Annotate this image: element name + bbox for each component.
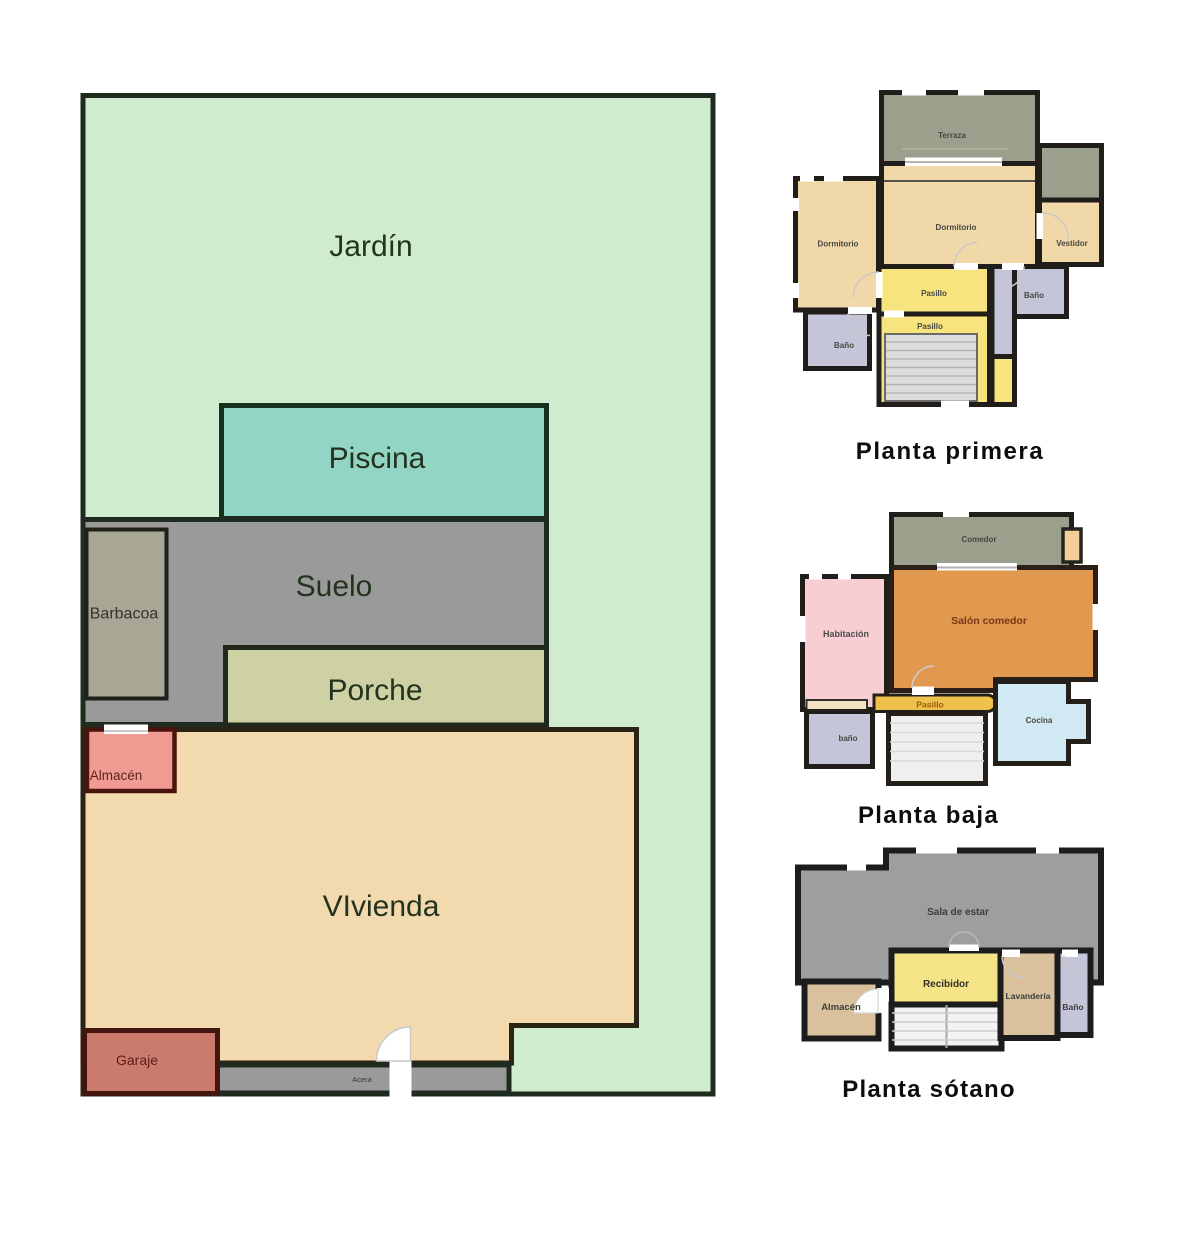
svg-text:Baño: Baño bbox=[1024, 291, 1044, 300]
svg-text:Piscina: Piscina bbox=[329, 442, 426, 475]
svg-text:Dormitorio: Dormitorio bbox=[936, 223, 977, 232]
svg-text:Dormitorio: Dormitorio bbox=[818, 240, 859, 249]
svg-text:Recibidor: Recibidor bbox=[923, 979, 969, 990]
svg-text:Terraza: Terraza bbox=[938, 131, 966, 140]
svg-text:Pasillo: Pasillo bbox=[917, 322, 943, 331]
svg-text:Pasillo: Pasillo bbox=[916, 700, 943, 710]
svg-text:Baño: Baño bbox=[1062, 1002, 1083, 1012]
svg-text:Cocina: Cocina bbox=[1026, 716, 1053, 725]
svg-text:Comedor: Comedor bbox=[961, 535, 996, 544]
svg-text:baño: baño bbox=[838, 734, 857, 743]
svg-text:Salón comedor: Salón comedor bbox=[951, 615, 1027, 627]
svg-text:Barbacoa: Barbacoa bbox=[90, 606, 159, 623]
svg-text:Lavandería: Lavandería bbox=[1006, 991, 1051, 1001]
svg-text:Baño: Baño bbox=[834, 341, 854, 350]
svg-text:Almacén: Almacén bbox=[821, 1002, 861, 1013]
svg-text:Acera: Acera bbox=[352, 1075, 372, 1084]
svg-text:Planta sótano: Planta sótano bbox=[842, 1076, 1016, 1103]
svg-text:Garaje: Garaje bbox=[116, 1052, 158, 1068]
svg-text:Almacén: Almacén bbox=[90, 768, 143, 783]
svg-text:Vestidor: Vestidor bbox=[1056, 239, 1088, 248]
svg-text:Planta baja: Planta baja bbox=[858, 802, 999, 829]
svg-text:Habitación: Habitación bbox=[823, 629, 869, 639]
svg-text:Planta primera: Planta primera bbox=[856, 438, 1044, 465]
svg-text:Suelo: Suelo bbox=[296, 570, 373, 603]
svg-text:Pasillo: Pasillo bbox=[921, 289, 947, 298]
svg-text:Porche: Porche bbox=[327, 674, 422, 707]
svg-text:Sala de estar: Sala de estar bbox=[927, 907, 989, 918]
svg-text:VIvienda: VIvienda bbox=[323, 890, 440, 923]
svg-text:Jardín: Jardín bbox=[329, 230, 412, 263]
